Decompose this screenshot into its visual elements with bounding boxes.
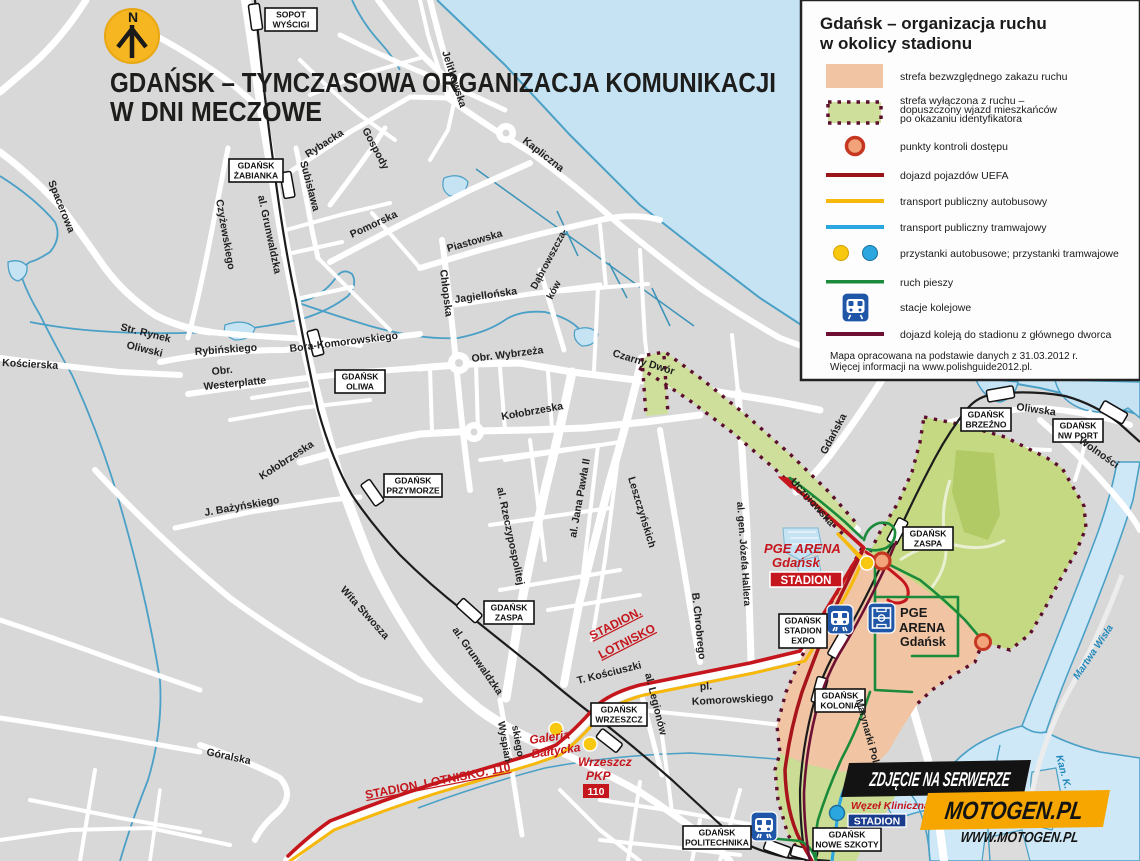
svg-text:w okolicy stadionu: w okolicy stadionu bbox=[819, 34, 972, 53]
svg-text:WWW.MOTOGEN.PL: WWW.MOTOGEN.PL bbox=[959, 830, 1079, 846]
svg-text:GDAŃSK: GDAŃSK bbox=[238, 161, 276, 171]
svg-text:STADION: STADION bbox=[854, 816, 900, 828]
svg-text:ŻABIANKA: ŻABIANKA bbox=[234, 171, 278, 181]
svg-text:BRZEŹNO: BRZEŹNO bbox=[965, 420, 1006, 430]
svg-text:POLITECHNIKA: POLITECHNIKA bbox=[685, 838, 749, 848]
svg-text:GDAŃSK – TYMCZASOWA ORGANIZACJ: GDAŃSK – TYMCZASOWA ORGANIZACJA KOMUNIKA… bbox=[110, 67, 776, 98]
svg-text:N: N bbox=[128, 9, 138, 25]
svg-text:GDAŃSK: GDAŃSK bbox=[699, 828, 737, 838]
svg-text:pl.: pl. bbox=[700, 680, 713, 693]
svg-text:transport publiczny tramwajowy: transport publiczny tramwajowy bbox=[900, 222, 1047, 234]
svg-text:OLIWA: OLIWA bbox=[346, 382, 374, 392]
svg-text:GDAŃSK: GDAŃSK bbox=[1060, 421, 1098, 431]
svg-text:EXPO: EXPO bbox=[791, 636, 815, 646]
svg-text:ruch pieszy: ruch pieszy bbox=[900, 277, 954, 289]
svg-text:MOTOGEN.PL: MOTOGEN.PL bbox=[943, 797, 1085, 825]
svg-text:po okazaniu identyfikatora: po okazaniu identyfikatora bbox=[900, 113, 1022, 125]
svg-text:przystanki autobusowe; przysta: przystanki autobusowe; przystanki tramwa… bbox=[900, 248, 1119, 260]
svg-text:GDAŃSK: GDAŃSK bbox=[829, 830, 867, 840]
svg-text:Obr.: Obr. bbox=[211, 364, 233, 378]
svg-text:ZASPA: ZASPA bbox=[495, 613, 523, 623]
svg-text:strefa bezwzględnego zakazu ru: strefa bezwzględnego zakazu ruchu bbox=[900, 71, 1068, 83]
svg-text:stacje kolejowe: stacje kolejowe bbox=[900, 302, 971, 314]
svg-text:dojazd pojazdów UEFA: dojazd pojazdów UEFA bbox=[900, 170, 1009, 182]
svg-text:GDAŃSK: GDAŃSK bbox=[785, 616, 823, 626]
svg-text:GDAŃSK: GDAŃSK bbox=[395, 476, 433, 486]
svg-text:GDAŃSK: GDAŃSK bbox=[491, 603, 529, 613]
svg-text:Mapa opracowana na podstawie d: Mapa opracowana na podstawie danych z 31… bbox=[830, 351, 1078, 362]
svg-text:Gdańsk: Gdańsk bbox=[900, 635, 946, 649]
svg-text:SOPOT: SOPOT bbox=[276, 10, 307, 20]
svg-text:ARENA: ARENA bbox=[899, 620, 946, 635]
svg-text:PKP: PKP bbox=[586, 769, 612, 783]
svg-text:PGE: PGE bbox=[900, 605, 928, 620]
svg-text:GDAŃSK: GDAŃSK bbox=[910, 529, 948, 539]
svg-text:punkty kontroli dostępu: punkty kontroli dostępu bbox=[900, 141, 1008, 153]
svg-text:STADION: STADION bbox=[781, 575, 832, 587]
svg-text:WYŚCIGI: WYŚCIGI bbox=[273, 19, 310, 30]
svg-text:Gdańsk: Gdańsk bbox=[772, 555, 820, 570]
svg-text:Gdańsk – organizacja ruchu: Gdańsk – organizacja ruchu bbox=[820, 14, 1047, 33]
svg-text:transport publiczny autobusowy: transport publiczny autobusowy bbox=[900, 196, 1048, 208]
svg-text:PRZYMORZE: PRZYMORZE bbox=[386, 486, 440, 496]
svg-text:ZASPA: ZASPA bbox=[914, 539, 942, 549]
svg-text:GDAŃSK: GDAŃSK bbox=[342, 372, 380, 382]
svg-text:dojazd koleją do stadionu z gł: dojazd koleją do stadionu z głównego dwo… bbox=[900, 329, 1111, 341]
svg-text:NOWE SZKOTY: NOWE SZKOTY bbox=[815, 840, 879, 850]
svg-text:GDAŃSK: GDAŃSK bbox=[968, 410, 1006, 420]
svg-text:GDAŃSK: GDAŃSK bbox=[601, 705, 639, 715]
svg-text:GDAŃSK: GDAŃSK bbox=[822, 691, 860, 701]
svg-text:Wrzeszcz: Wrzeszcz bbox=[578, 755, 632, 769]
svg-text:110: 110 bbox=[588, 786, 605, 798]
svg-text:STADION: STADION bbox=[784, 626, 822, 636]
svg-text:ZDJĘCIE NA SERWERZE: ZDJĘCIE NA SERWERZE bbox=[868, 769, 1012, 791]
svg-text:Węzeł Kliniczna: Węzeł Kliniczna bbox=[851, 800, 930, 812]
svg-text:WRZESZCZ: WRZESZCZ bbox=[595, 715, 642, 725]
svg-text:NW PORT: NW PORT bbox=[1058, 431, 1099, 441]
svg-text:PGE ARENA: PGE ARENA bbox=[764, 541, 841, 556]
svg-text:W DNI MECZOWE: W DNI MECZOWE bbox=[110, 96, 322, 127]
svg-text:Więcej informacji na www.polis: Więcej informacji na www.polishguide2012… bbox=[830, 362, 1032, 373]
